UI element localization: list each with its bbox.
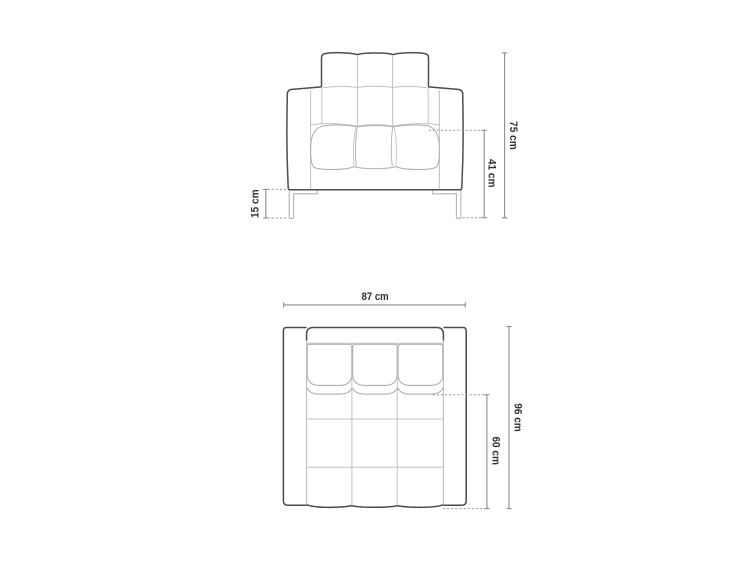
svg-text:75 cm: 75 cm — [507, 121, 519, 150]
svg-text:41 cm: 41 cm — [486, 159, 498, 188]
svg-text:15 cm: 15 cm — [250, 189, 262, 218]
svg-text:87 cm: 87 cm — [362, 291, 389, 303]
svg-text:96 cm: 96 cm — [512, 403, 524, 432]
svg-text:60 cm: 60 cm — [490, 436, 502, 465]
